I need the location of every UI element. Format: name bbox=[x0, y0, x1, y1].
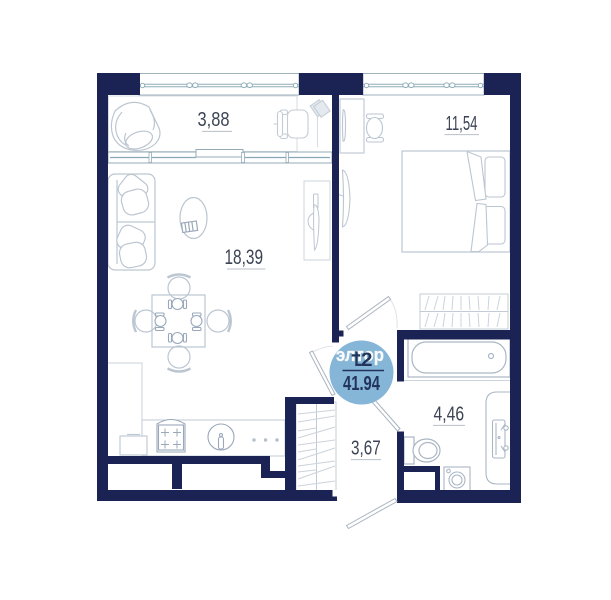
svg-text:41.94: 41.94 bbox=[343, 372, 380, 395]
svg-text:4,46: 4,46 bbox=[434, 404, 465, 426]
svg-text:2: 2 bbox=[361, 350, 373, 371]
svg-text:3,88: 3,88 bbox=[198, 109, 230, 131]
svg-text:3,67: 3,67 bbox=[351, 438, 381, 460]
svg-text:18,39: 18,39 bbox=[225, 245, 264, 269]
svg-text:11,54: 11,54 bbox=[446, 113, 478, 135]
